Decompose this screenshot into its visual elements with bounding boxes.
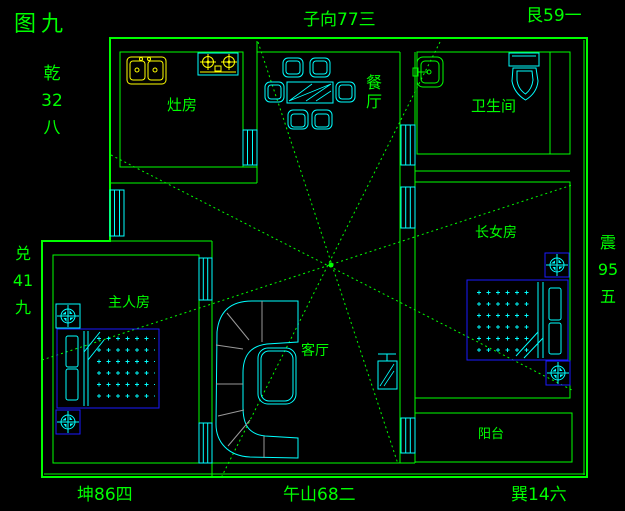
compass-label-northeast: 艮59一 bbox=[526, 8, 582, 25]
nightstand-lamp bbox=[56, 304, 80, 328]
nightstand-lamp bbox=[56, 410, 80, 434]
window-kitchen-right bbox=[243, 130, 257, 165]
room-label-bathroom: 卫生间 bbox=[471, 99, 516, 114]
compass-label-south: 午山68二 bbox=[283, 487, 356, 504]
room-label-dining: 餐厅 bbox=[364, 74, 380, 112]
room-label-balcony: 阳台 bbox=[478, 428, 504, 441]
chair bbox=[265, 82, 284, 102]
window-corridor-left bbox=[110, 190, 124, 236]
chair bbox=[283, 58, 303, 77]
floor-plan-canvas: 图九 乾 32 八 子向77三 艮59一 兑 41 九 震 95 五 坤86四 … bbox=[0, 0, 625, 511]
chair bbox=[312, 110, 332, 129]
window-master-upper bbox=[199, 258, 212, 300]
dining-table bbox=[287, 82, 333, 103]
stove bbox=[198, 53, 238, 75]
nightstand-lamp bbox=[546, 361, 570, 385]
room-label-living: 客厅 bbox=[301, 344, 329, 358]
compass-label-northwest: 乾 32 八 bbox=[38, 66, 66, 147]
windows bbox=[110, 125, 415, 463]
compass-label-southeast: 巽14六 bbox=[511, 487, 567, 504]
figure-title: 图九 bbox=[14, 14, 68, 36]
window-daughter-left bbox=[401, 187, 415, 228]
ray-diagonal-1 bbox=[111, 155, 572, 390]
chair bbox=[336, 82, 355, 102]
daughter-bed bbox=[467, 280, 568, 360]
hall-right-wall bbox=[400, 52, 415, 463]
compass-label-southwest: 坤86四 bbox=[77, 487, 133, 504]
master-bed bbox=[57, 329, 159, 408]
coffee-table bbox=[258, 348, 296, 404]
ray-diagonal-2 bbox=[222, 42, 440, 476]
compass-label-north: 子向77三 bbox=[303, 12, 376, 29]
dining-chairs bbox=[265, 58, 355, 129]
compass-label-east: 震 95 五 bbox=[595, 235, 621, 316]
toilet bbox=[509, 53, 539, 100]
chair bbox=[288, 110, 308, 129]
nightstand-lamp bbox=[545, 253, 569, 277]
tv bbox=[378, 354, 397, 389]
window-bathroom-left bbox=[401, 125, 415, 165]
sofa bbox=[216, 301, 298, 458]
window-master-lower bbox=[199, 423, 212, 463]
floor-plan-drawing bbox=[0, 0, 625, 511]
room-label-master: 主人房 bbox=[108, 296, 150, 310]
room-label-eldest-daughter: 长女房 bbox=[475, 226, 517, 240]
room-label-kitchen: 灶房 bbox=[167, 98, 197, 113]
compass-label-west: 兑 41 九 bbox=[10, 246, 36, 327]
kitchen-sink bbox=[127, 57, 166, 84]
center-point bbox=[329, 263, 334, 268]
window-balcony-left bbox=[401, 418, 415, 453]
wash-basin bbox=[413, 57, 443, 87]
chair bbox=[310, 58, 330, 77]
